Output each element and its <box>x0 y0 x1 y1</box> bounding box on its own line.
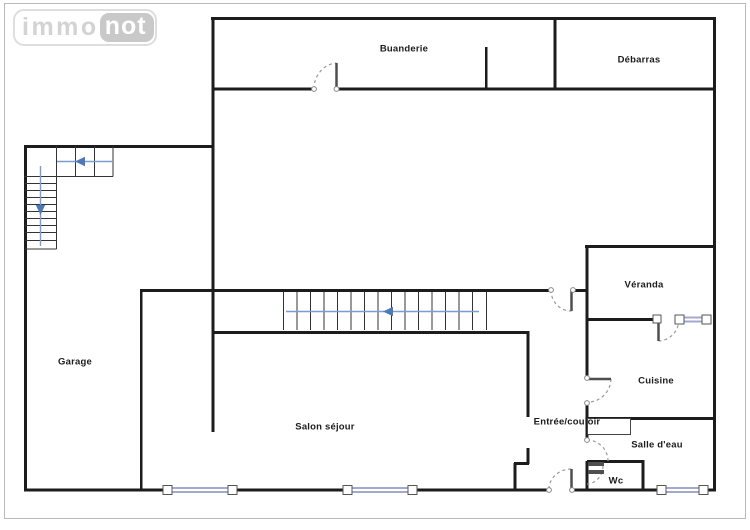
stairs-left-arrow-icon <box>383 307 393 316</box>
corridor-door <box>549 288 576 311</box>
stairs-down-arrow-icon <box>36 205 45 215</box>
facade-window-2 <box>343 486 417 495</box>
room-label-debarras: Débarras <box>618 55 661 66</box>
room-label-salle-eau: Salle d'eau <box>631 440 682 451</box>
cuisine-door <box>585 376 611 406</box>
logo-not-badge: not <box>100 13 154 42</box>
buanderie-door <box>312 63 339 91</box>
immonot-logo: immo not <box>13 9 157 46</box>
facade-window-3 <box>657 486 708 495</box>
facade-window-1 <box>163 486 237 495</box>
entrance-door <box>547 469 575 492</box>
room-label-veranda: Véranda <box>625 280 664 291</box>
wc-door <box>587 462 604 484</box>
logo-immo-text: immo <box>22 15 99 40</box>
salle-eau-door <box>585 438 608 461</box>
room-label-entree-couloir: Entrée/couloir <box>534 417 601 428</box>
room-label-wc: Wc <box>609 476 624 487</box>
stairs-left-arrow-icon <box>75 157 85 166</box>
floor-plan-drawing <box>0 0 750 530</box>
room-label-garage: Garage <box>58 357 92 368</box>
wc-door-bar <box>588 470 604 474</box>
floor-plan-page: { "logo": { "immo": "immo", "not": "not"… <box>0 0 750 530</box>
veranda-window <box>675 315 711 324</box>
main-staircase-direction <box>286 307 479 316</box>
room-label-cuisine: Cuisine <box>638 376 674 387</box>
wc-door-bar <box>588 462 604 466</box>
room-label-salon-sejour: Salon séjour <box>295 422 354 433</box>
room-label-buanderie: Buanderie <box>380 44 428 55</box>
